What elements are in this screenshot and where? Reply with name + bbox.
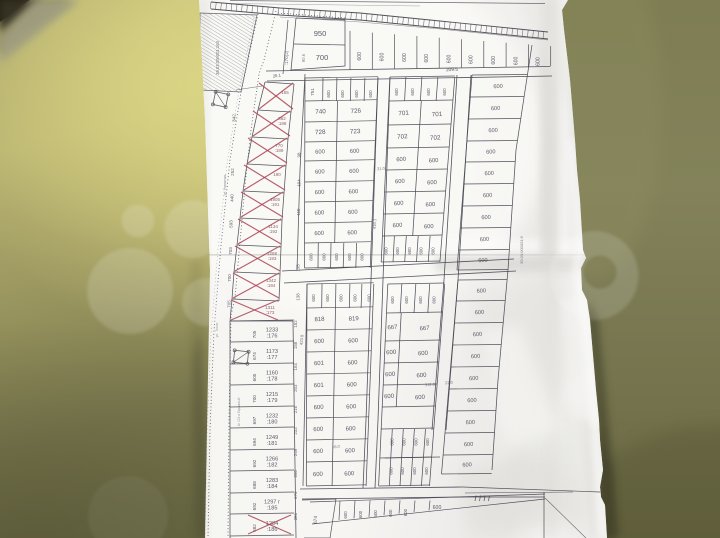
svg-text:600: 600: [366, 294, 371, 302]
svg-text:600: 600: [388, 509, 393, 517]
svg-text:600: 600: [418, 296, 423, 304]
svg-text:950: 950: [314, 29, 327, 38]
svg-text::179: :179: [267, 398, 278, 404]
svg-text:600: 600: [424, 54, 430, 63]
svg-text::178: :178: [267, 377, 278, 383]
svg-text:600: 600: [467, 398, 477, 404]
svg-text:600: 600: [410, 88, 415, 96]
svg-text:1173: 1173: [266, 349, 278, 355]
svg-text::176: :176: [267, 334, 278, 340]
svg-text:600: 600: [424, 224, 434, 231]
svg-text:600: 600: [431, 247, 436, 255]
svg-text:697: 697: [252, 416, 257, 424]
svg-text:600: 600: [462, 462, 472, 468]
svg-text:1160: 1160: [266, 371, 278, 377]
svg-text:1233: 1233: [266, 328, 278, 334]
svg-text:1249: 1249: [266, 435, 278, 441]
svg-text:600: 600: [325, 294, 330, 302]
svg-text:600: 600: [385, 372, 396, 379]
svg-text:600: 600: [425, 438, 430, 446]
svg-text::185: :185: [267, 506, 278, 512]
svg-text:723: 723: [350, 128, 361, 136]
svg-text:600: 600: [477, 288, 487, 294]
svg-text:600: 600: [475, 310, 485, 316]
svg-text:674: 674: [313, 516, 319, 525]
svg-text:726: 726: [350, 108, 361, 116]
svg-text:600: 600: [313, 449, 324, 456]
svg-text:158: 158: [293, 341, 298, 349]
svg-text:ул. Гаражная: ул. Гаражная: [223, 175, 227, 196]
svg-text:600: 600: [313, 405, 324, 412]
svg-text:702: 702: [430, 134, 441, 142]
svg-text:600: 600: [471, 354, 481, 360]
svg-text:688: 688: [252, 481, 257, 489]
svg-text:135: 135: [296, 264, 301, 272]
svg-text:600: 600: [481, 215, 491, 221]
svg-text:600: 600: [480, 237, 490, 243]
svg-text:600: 600: [427, 180, 437, 187]
svg-text:593: 593: [229, 220, 234, 228]
svg-text:600: 600: [373, 510, 378, 518]
svg-text:600: 600: [464, 442, 474, 448]
svg-text:423.9: 423.9: [299, 334, 305, 345]
svg-text::192: :192: [269, 229, 278, 234]
svg-text:600: 600: [412, 467, 417, 475]
svg-text:600: 600: [368, 90, 373, 98]
svg-text:667: 667: [419, 326, 430, 333]
svg-text:600: 600: [350, 149, 360, 155]
svg-text:600: 600: [348, 210, 358, 216]
svg-text:600: 600: [354, 90, 359, 98]
svg-text:600: 600: [347, 230, 357, 236]
svg-text:600: 600: [345, 448, 356, 455]
svg-text:600: 600: [424, 467, 429, 475]
svg-text:1283: 1283: [266, 478, 278, 484]
svg-text::184: :184: [267, 484, 278, 490]
svg-text:1297 г: 1297 г: [264, 500, 280, 506]
svg-text:703: 703: [228, 247, 233, 255]
svg-text:601: 601: [314, 361, 325, 368]
svg-text:600: 600: [384, 394, 395, 401]
svg-text:600: 600: [380, 53, 386, 62]
svg-text:702: 702: [397, 133, 408, 141]
svg-text:1266: 1266: [266, 457, 278, 463]
svg-text::186: :186: [267, 527, 278, 533]
svg-text:600: 600: [426, 88, 431, 96]
svg-text:600: 600: [315, 190, 325, 196]
svg-text:600: 600: [313, 472, 324, 479]
svg-text:600: 600: [346, 404, 357, 411]
svg-text:110: 110: [296, 208, 301, 216]
svg-text:138: 138: [295, 293, 300, 301]
svg-text:152: 152: [293, 320, 298, 328]
svg-text:600: 600: [493, 84, 503, 90]
svg-text:600: 600: [386, 350, 397, 357]
svg-text:1215: 1215: [266, 392, 278, 398]
svg-text:600: 600: [314, 339, 325, 346]
svg-text:600: 600: [315, 169, 325, 175]
svg-text:600: 600: [395, 179, 405, 186]
svg-text:600: 600: [348, 338, 359, 345]
svg-text:216: 216: [293, 405, 298, 413]
svg-text:818: 818: [314, 317, 325, 324]
svg-text:700: 700: [252, 395, 257, 403]
svg-text:600: 600: [469, 55, 475, 64]
svg-text:104: 104: [296, 179, 301, 187]
svg-text::182: :182: [267, 463, 278, 469]
svg-text:600: 600: [349, 169, 359, 175]
svg-text:265: 265: [293, 470, 298, 478]
svg-text::180: :180: [267, 420, 278, 426]
svg-text:600: 600: [339, 294, 344, 302]
svg-text:701: 701: [398, 110, 409, 118]
svg-text:605: 605: [252, 373, 257, 381]
svg-text:694: 694: [252, 438, 257, 446]
svg-text:18.0: 18.0: [332, 444, 341, 449]
svg-text:600: 600: [400, 467, 405, 475]
svg-text:600: 600: [484, 171, 494, 177]
svg-text::188: :188: [278, 121, 287, 126]
svg-text:600: 600: [394, 88, 399, 96]
svg-text:600: 600: [488, 128, 498, 134]
svg-text:728: 728: [315, 129, 326, 137]
svg-text:819: 819: [349, 316, 360, 323]
svg-text:600: 600: [344, 471, 355, 478]
svg-text:600: 600: [347, 253, 352, 261]
svg-text:600: 600: [483, 193, 493, 199]
svg-text:600: 600: [429, 158, 439, 165]
svg-text::170(2): :170(2): [284, 50, 289, 65]
svg-text:700: 700: [227, 274, 232, 282]
svg-text:600: 600: [446, 54, 452, 63]
svg-text:416.1: 416.1: [372, 218, 378, 229]
svg-text:600: 600: [415, 395, 426, 402]
svg-text::194: :194: [267, 283, 276, 288]
svg-text:600: 600: [425, 202, 435, 209]
svg-text:600: 600: [404, 296, 409, 304]
svg-text:600: 600: [486, 149, 496, 155]
svg-text:600: 600: [321, 253, 326, 261]
svg-text:600: 600: [348, 189, 358, 195]
svg-text:600: 600: [394, 201, 404, 208]
svg-text:667: 667: [387, 325, 398, 332]
svg-text:281: 281: [293, 512, 298, 520]
svg-text:751: 751: [310, 88, 315, 96]
svg-text:600: 600: [340, 90, 345, 98]
svg-text:249: 249: [293, 448, 298, 456]
svg-text:600: 600: [513, 56, 519, 65]
svg-text:740: 740: [315, 108, 326, 116]
svg-text:600: 600: [358, 510, 363, 518]
svg-text:674: 674: [252, 352, 257, 360]
svg-text:165: 165: [281, 90, 289, 95]
svg-text:600: 600: [491, 56, 497, 65]
svg-text:601: 601: [314, 383, 325, 390]
svg-text:600: 600: [359, 253, 364, 261]
svg-text:692: 692: [252, 459, 257, 467]
svg-text:600: 600: [407, 247, 412, 255]
svg-text:440: 440: [229, 194, 234, 202]
svg-text:90.6: 90.6: [301, 53, 306, 62]
svg-text:600: 600: [469, 376, 479, 382]
svg-text:600: 600: [326, 90, 331, 98]
svg-text:600: 600: [536, 57, 542, 66]
svg-text:600: 600: [343, 511, 348, 519]
svg-text:600: 600: [396, 157, 406, 164]
svg-text:600: 600: [395, 247, 400, 255]
svg-text:600: 600: [311, 294, 316, 302]
svg-text:600: 600: [345, 426, 356, 433]
svg-text:600: 600: [418, 351, 429, 358]
svg-text:600: 600: [388, 467, 393, 475]
svg-text:600: 600: [389, 438, 394, 446]
svg-text:600: 600: [315, 149, 325, 155]
svg-text:600: 600: [313, 427, 324, 434]
svg-text:233: 233: [293, 427, 298, 435]
svg-text:705: 705: [252, 330, 257, 338]
svg-text:600: 600: [466, 420, 476, 426]
svg-text:600: 600: [314, 231, 324, 237]
svg-text:692: 692: [252, 502, 257, 510]
svg-text:600: 600: [347, 360, 358, 367]
svg-text:273: 273: [293, 491, 298, 499]
svg-text:600: 600: [402, 53, 408, 62]
svg-text:600: 600: [416, 373, 427, 380]
svg-text:600: 600: [357, 52, 363, 61]
svg-text:600: 600: [432, 296, 437, 304]
svg-text:600: 600: [353, 294, 358, 302]
svg-text::173: :173: [266, 310, 275, 315]
svg-text:209.5: 209.5: [446, 67, 459, 73]
svg-text::193: :193: [268, 256, 277, 261]
svg-text::181: :181: [267, 441, 278, 447]
svg-text:1232: 1232: [266, 414, 278, 420]
svg-text:98: 98: [297, 152, 302, 157]
svg-text:600: 600: [314, 210, 324, 216]
svg-text:600: 600: [403, 508, 408, 516]
svg-text:701: 701: [432, 111, 443, 119]
svg-text:203: 203: [293, 384, 298, 392]
svg-text:39.03:000001:163: 39.03:000001:163: [215, 40, 220, 74]
svg-text::177: :177: [267, 355, 278, 361]
svg-text:Аг 119 а Гаражный: Аг 119 а Гаражный: [237, 398, 241, 427]
svg-text:600: 600: [413, 438, 418, 446]
svg-text::191: :191: [271, 202, 280, 207]
svg-text:190: 190: [273, 172, 281, 177]
svg-text:312.0: 312.0: [425, 382, 436, 388]
svg-text::189: :189: [275, 148, 284, 153]
svg-text:600: 600: [392, 223, 402, 230]
svg-text:600: 600: [473, 332, 483, 338]
svg-text:252: 252: [230, 168, 235, 176]
svg-text:ул. Тихая: ул. Тихая: [215, 323, 219, 338]
svg-text:39.03:000001:9: 39.03:000001:9: [519, 235, 524, 264]
svg-text:600: 600: [390, 296, 395, 304]
svg-text:600: 600: [491, 106, 501, 112]
svg-text:600: 600: [419, 247, 424, 255]
svg-text:600: 600: [401, 438, 406, 446]
svg-text:600: 600: [309, 253, 314, 261]
svg-text:600: 600: [347, 382, 358, 389]
svg-text:700: 700: [316, 53, 329, 62]
svg-text:600: 600: [433, 505, 442, 511]
svg-text:600: 600: [334, 253, 339, 261]
svg-text:342: 342: [232, 114, 237, 122]
svg-text:31.0: 31.0: [377, 166, 386, 171]
svg-text:164: 164: [293, 363, 298, 371]
svg-text:600: 600: [442, 88, 447, 96]
